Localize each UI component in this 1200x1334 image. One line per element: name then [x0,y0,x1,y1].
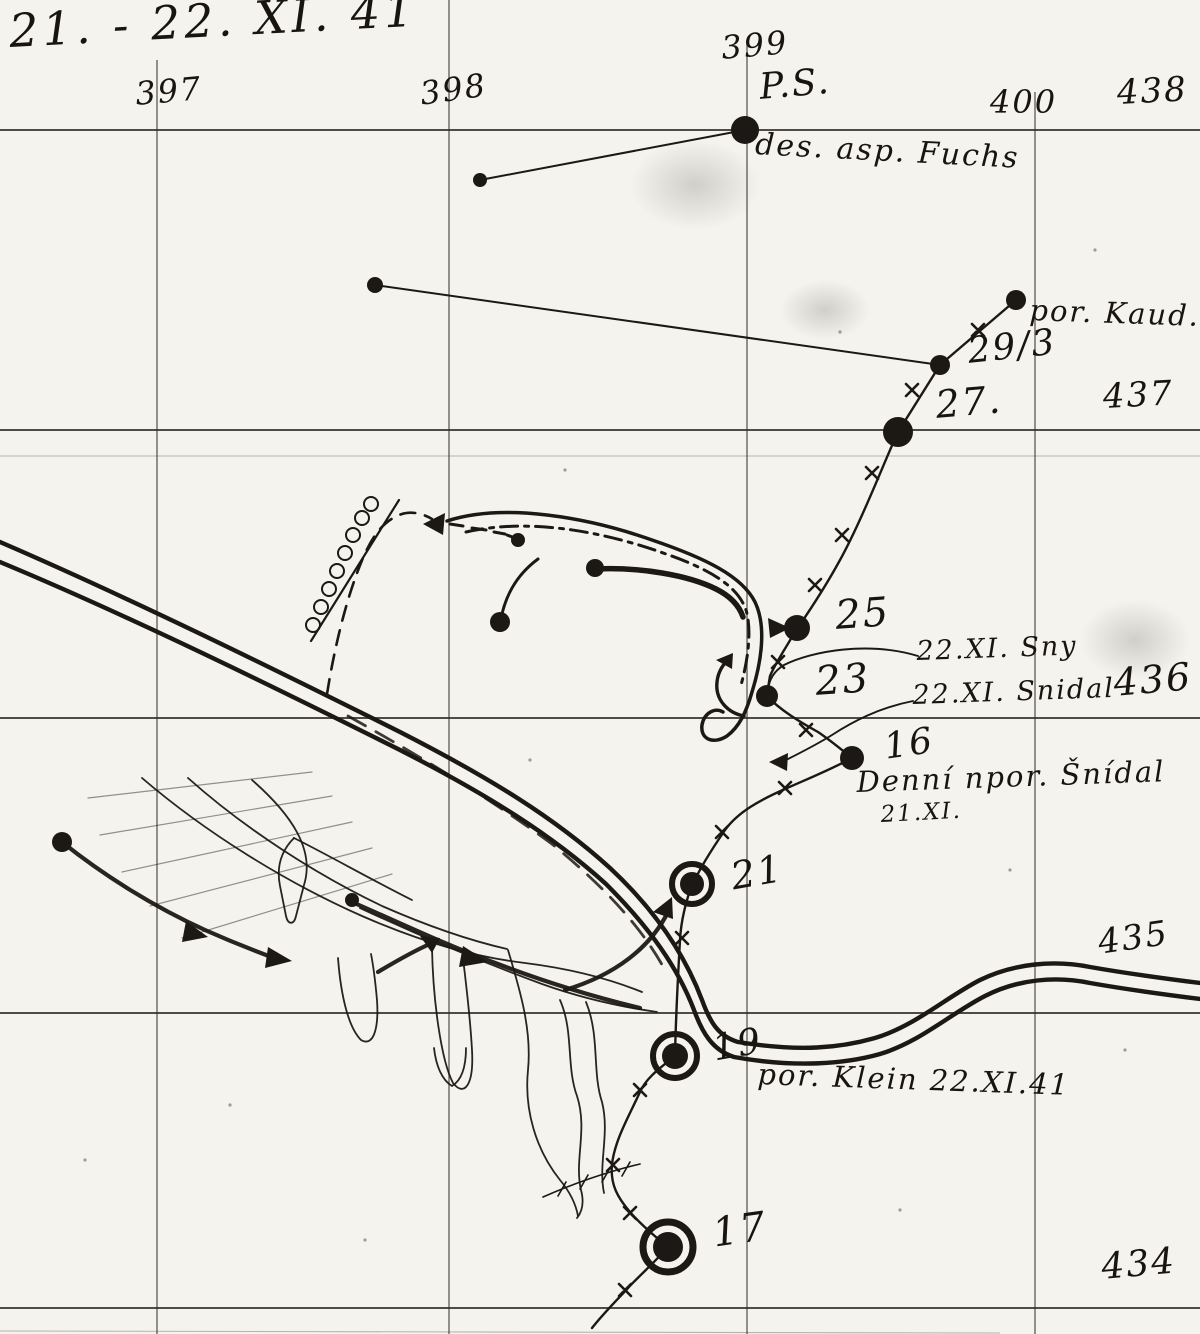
leader-arrowhead [769,753,788,771]
label-note-sny: 22.XI. Sny [916,632,1078,665]
marker-dot [52,832,72,852]
dashed-route [327,513,515,694]
obstacle-wire-symbol [306,497,399,641]
grid-easting-label: 397 [134,72,204,110]
arrowhead [265,947,292,968]
label-point-21: 21 [728,849,786,896]
grid-easting-label: 400 [990,86,1057,118]
grid-northing-label: 435 [1096,916,1171,960]
label-duty-date: 21.XI. [880,800,962,827]
main-road [0,542,1200,1064]
grid-easting-label: 399 [720,26,790,64]
position-markers [52,116,1026,1272]
marker-kaud [1006,290,1026,310]
grid-easting-label: 398 [418,69,489,110]
movement-arrows [62,618,790,1008]
map-canvas [0,0,1200,1334]
marker-29-3 [930,355,950,375]
grid-northing-label: 434 [1100,1243,1178,1285]
label-point-25: 25 [834,592,892,636]
marker-23 [756,685,778,707]
marker-dot [490,612,510,632]
marker-dot [367,277,383,293]
grid-northing-label: 437 [1102,376,1175,414]
marker-27 [883,417,913,447]
label-point-16: 16 [882,723,936,766]
marker-dot [473,173,487,187]
marker-25 [784,615,810,641]
label-ps-post: P.S. [758,64,832,106]
marker-17 [643,1222,693,1272]
ravine-contours [88,772,657,1218]
hachure-fan [88,772,392,938]
marker-dot [345,893,359,907]
label-note-snidal: 22.XI. Snidal [912,675,1115,709]
label-strength-29-3: 29/3 [966,325,1058,370]
label-point-23: 23 [814,658,872,702]
grid-northing-label: 436 [1112,657,1194,702]
label-point-17: 17 [710,1206,770,1253]
label-point-27: 27. [934,380,1003,424]
grid-northing-label: 438 [1116,72,1189,110]
hand-drawn-situation-map: 21. - 22. XI. 41 397 398 399 400 438 437… [0,0,1200,1334]
marker-dot [511,533,525,547]
arrowhead [716,653,733,669]
marker-dot [586,559,604,577]
marker-21 [672,864,712,904]
grid-lines [0,0,1200,1334]
